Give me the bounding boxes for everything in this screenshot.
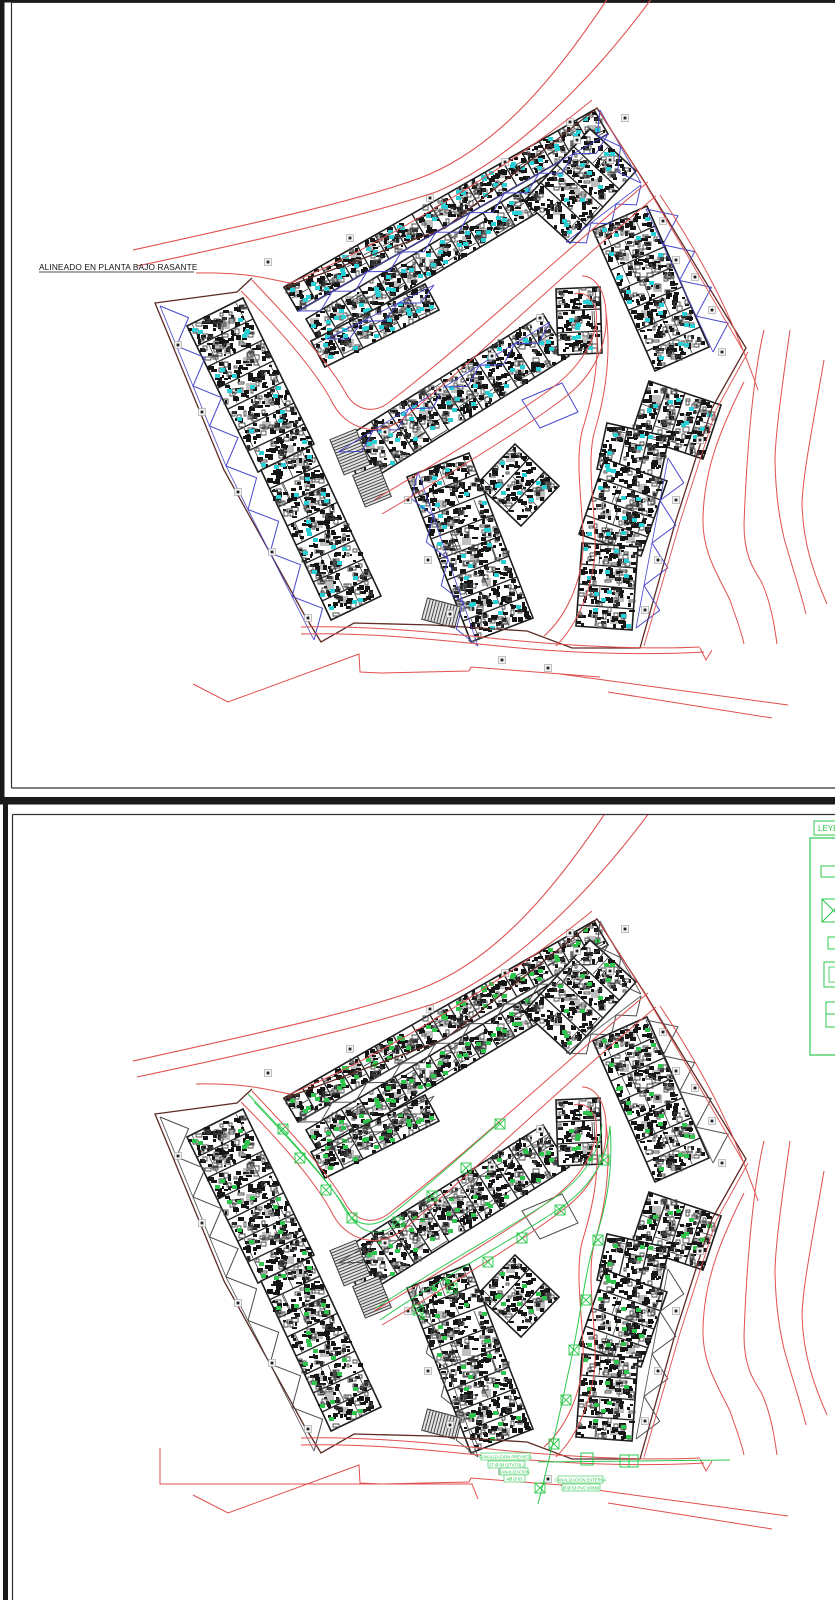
svg-text:ALINEADO EN PLANTA BAJO RASANT: ALINEADO EN PLANTA BAJO RASANTE bbox=[39, 262, 198, 272]
svg-text:CANALIZACIÓN PREVISTA: CANALIZACIÓN PREVISTA bbox=[479, 1454, 532, 1459]
svg-text:LEYENDA: LEYENDA bbox=[818, 824, 835, 833]
svg-text:4Ø Ø 63: 4Ø Ø 63 bbox=[507, 1476, 523, 1481]
svg-text:2T Ø 90 (2TVTOL): 2T Ø 90 (2TVTOL) bbox=[489, 1462, 524, 1467]
svg-text:CANALIZACIÓN EXTERNA: CANALIZACIÓN EXTERNA bbox=[555, 1477, 607, 1482]
svg-text:CANALIZACIÓN: CANALIZACIÓN bbox=[499, 1469, 530, 1474]
svg-text:Ø Ø 63 PVC 90X60: Ø Ø 63 PVC 90X60 bbox=[563, 1485, 600, 1490]
